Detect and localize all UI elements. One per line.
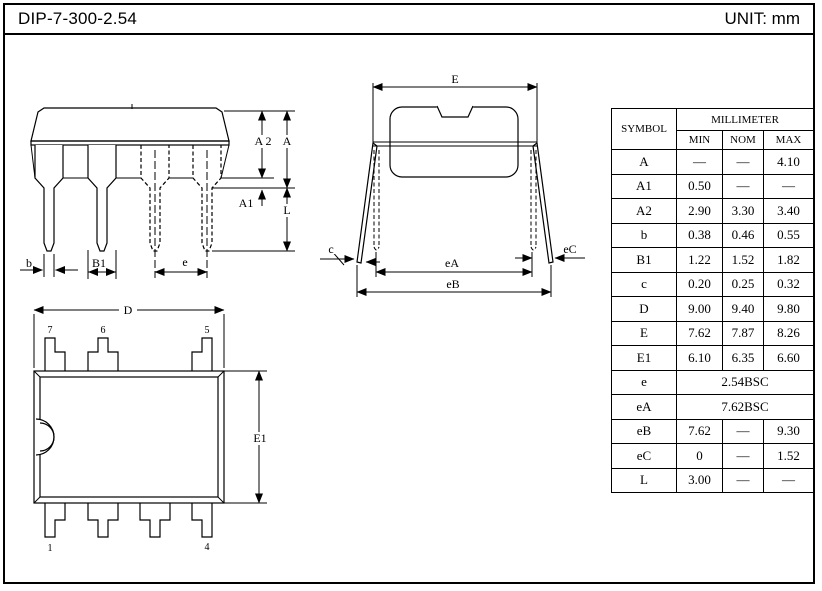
- symbol-cell: A2: [612, 199, 677, 224]
- symbol-cell: b: [612, 223, 677, 248]
- max-cell: 9.80: [764, 297, 814, 322]
- table-row: eC 0 — 1.52: [612, 444, 814, 469]
- max-cell: —: [764, 468, 814, 493]
- min-cell: 0: [677, 444, 723, 469]
- table-row: b 0.38 0.46 0.55: [612, 223, 814, 248]
- span-cell: 7.62BSC: [677, 395, 814, 420]
- max-cell: 1.82: [764, 248, 814, 273]
- dim-label-d: D: [124, 303, 133, 317]
- nom-cell: 9.40: [723, 297, 764, 322]
- min-header: MIN: [677, 131, 723, 150]
- dim-label-a2: A 2: [254, 134, 271, 148]
- nom-cell: —: [723, 150, 764, 175]
- nom-cell: 1.52: [723, 248, 764, 273]
- table-header-row: SYMBOL MILLIMETER: [612, 109, 814, 131]
- datasheet-page: DIP-7-300-2.54 UNIT: mm: [0, 0, 822, 591]
- symbol-cell: eB: [612, 419, 677, 444]
- symbol-cell: B1: [612, 248, 677, 273]
- table-row: e 2.54BSC: [612, 370, 814, 395]
- nom-cell: 7.87: [723, 321, 764, 346]
- min-cell: 1.22: [677, 248, 723, 273]
- table-row: E1 6.10 6.35 6.60: [612, 346, 814, 371]
- min-cell: 0.38: [677, 223, 723, 248]
- package-body-outline: [34, 371, 224, 503]
- table-row: A — — 4.10: [612, 150, 814, 175]
- page-title: DIP-7-300-2.54: [18, 9, 137, 29]
- min-cell: 9.00: [677, 297, 723, 322]
- table-row: eA 7.62BSC: [612, 395, 814, 420]
- symbol-cell: A1: [612, 174, 677, 199]
- max-cell: 0.55: [764, 223, 814, 248]
- min-cell: 7.62: [677, 419, 723, 444]
- pin-number-4: 4: [205, 542, 210, 553]
- symbol-cell: A: [612, 150, 677, 175]
- table-row: L 3.00 — —: [612, 468, 814, 493]
- max-cell: 8.26: [764, 321, 814, 346]
- pin-number-7: 7: [48, 325, 53, 336]
- nom-cell: —: [723, 468, 764, 493]
- front-view-drawing: A 2 A A1 L b B1 e: [10, 88, 306, 292]
- pin-number-5: 5: [205, 325, 210, 336]
- nom-cell: 3.30: [723, 199, 764, 224]
- span-cell: 2.54BSC: [677, 370, 814, 395]
- symbol-cell: L: [612, 468, 677, 493]
- dim-label-a: A: [283, 134, 292, 148]
- min-cell: 3.00: [677, 468, 723, 493]
- symbol-cell: E1: [612, 346, 677, 371]
- dim-label-eb: eB: [446, 277, 459, 291]
- unit-label: UNIT: mm: [724, 9, 800, 29]
- dim-label-e1: E1: [253, 431, 266, 445]
- max-cell: 4.10: [764, 150, 814, 175]
- max-cell: 6.60: [764, 346, 814, 371]
- top-view-drawing: 7 6 5 1 4 D E1: [10, 295, 300, 580]
- table-row: A2 2.90 3.30 3.40: [612, 199, 814, 224]
- dim-label-b: b: [26, 256, 32, 270]
- nom-cell: 0.25: [723, 272, 764, 297]
- max-cell: 3.40: [764, 199, 814, 224]
- millimeter-header: MILLIMETER: [677, 109, 814, 131]
- nom-header: NOM: [723, 131, 764, 150]
- title-bar: DIP-7-300-2.54 UNIT: mm: [5, 5, 813, 35]
- min-cell: 7.62: [677, 321, 723, 346]
- max-cell: 1.52: [764, 444, 814, 469]
- dim-label-e-width: E: [451, 72, 458, 86]
- dim-label-l: L: [283, 203, 290, 217]
- max-header: MAX: [764, 131, 814, 150]
- symbol-cell: D: [612, 297, 677, 322]
- symbol-cell: e: [612, 370, 677, 395]
- min-cell: 0.20: [677, 272, 723, 297]
- table-row: D 9.00 9.40 9.80: [612, 297, 814, 322]
- package-body-outline: [357, 106, 553, 263]
- min-cell: 6.10: [677, 346, 723, 371]
- dimensions-table: SYMBOL MILLIMETER MIN NOM MAX A — — 4.10…: [611, 108, 814, 493]
- symbol-header: SYMBOL: [612, 109, 677, 150]
- table-row: c 0.20 0.25 0.32: [612, 272, 814, 297]
- symbol-cell: c: [612, 272, 677, 297]
- min-cell: 0.50: [677, 174, 723, 199]
- nom-cell: —: [723, 174, 764, 199]
- dim-label-ea: eA: [445, 256, 459, 270]
- max-cell: 9.30: [764, 419, 814, 444]
- pin-number-1: 1: [48, 543, 53, 554]
- min-cell: 2.90: [677, 199, 723, 224]
- nom-cell: 6.35: [723, 346, 764, 371]
- max-cell: 0.32: [764, 272, 814, 297]
- dim-label-e: e: [182, 255, 187, 269]
- table-row: B1 1.22 1.52 1.82: [612, 248, 814, 273]
- nom-cell: —: [723, 444, 764, 469]
- nom-cell: —: [723, 419, 764, 444]
- max-cell: —: [764, 174, 814, 199]
- dim-label-c: c: [328, 242, 333, 256]
- side-view-drawing: E c eC eA eB: [300, 60, 600, 310]
- table-row: A1 0.50 — —: [612, 174, 814, 199]
- nom-cell: 0.46: [723, 223, 764, 248]
- symbol-cell: eA: [612, 395, 677, 420]
- package-pins: [35, 145, 221, 278]
- pin-number-6: 6: [101, 325, 106, 336]
- dim-label-ec: eC: [563, 242, 576, 256]
- min-cell: —: [677, 150, 723, 175]
- table-row: eB 7.62 — 9.30: [612, 419, 814, 444]
- symbol-cell: eC: [612, 444, 677, 469]
- dim-label-b1: B1: [92, 256, 106, 270]
- symbol-cell: E: [612, 321, 677, 346]
- table-row: E 7.62 7.87 8.26: [612, 321, 814, 346]
- dim-label-a1: A1: [239, 196, 254, 210]
